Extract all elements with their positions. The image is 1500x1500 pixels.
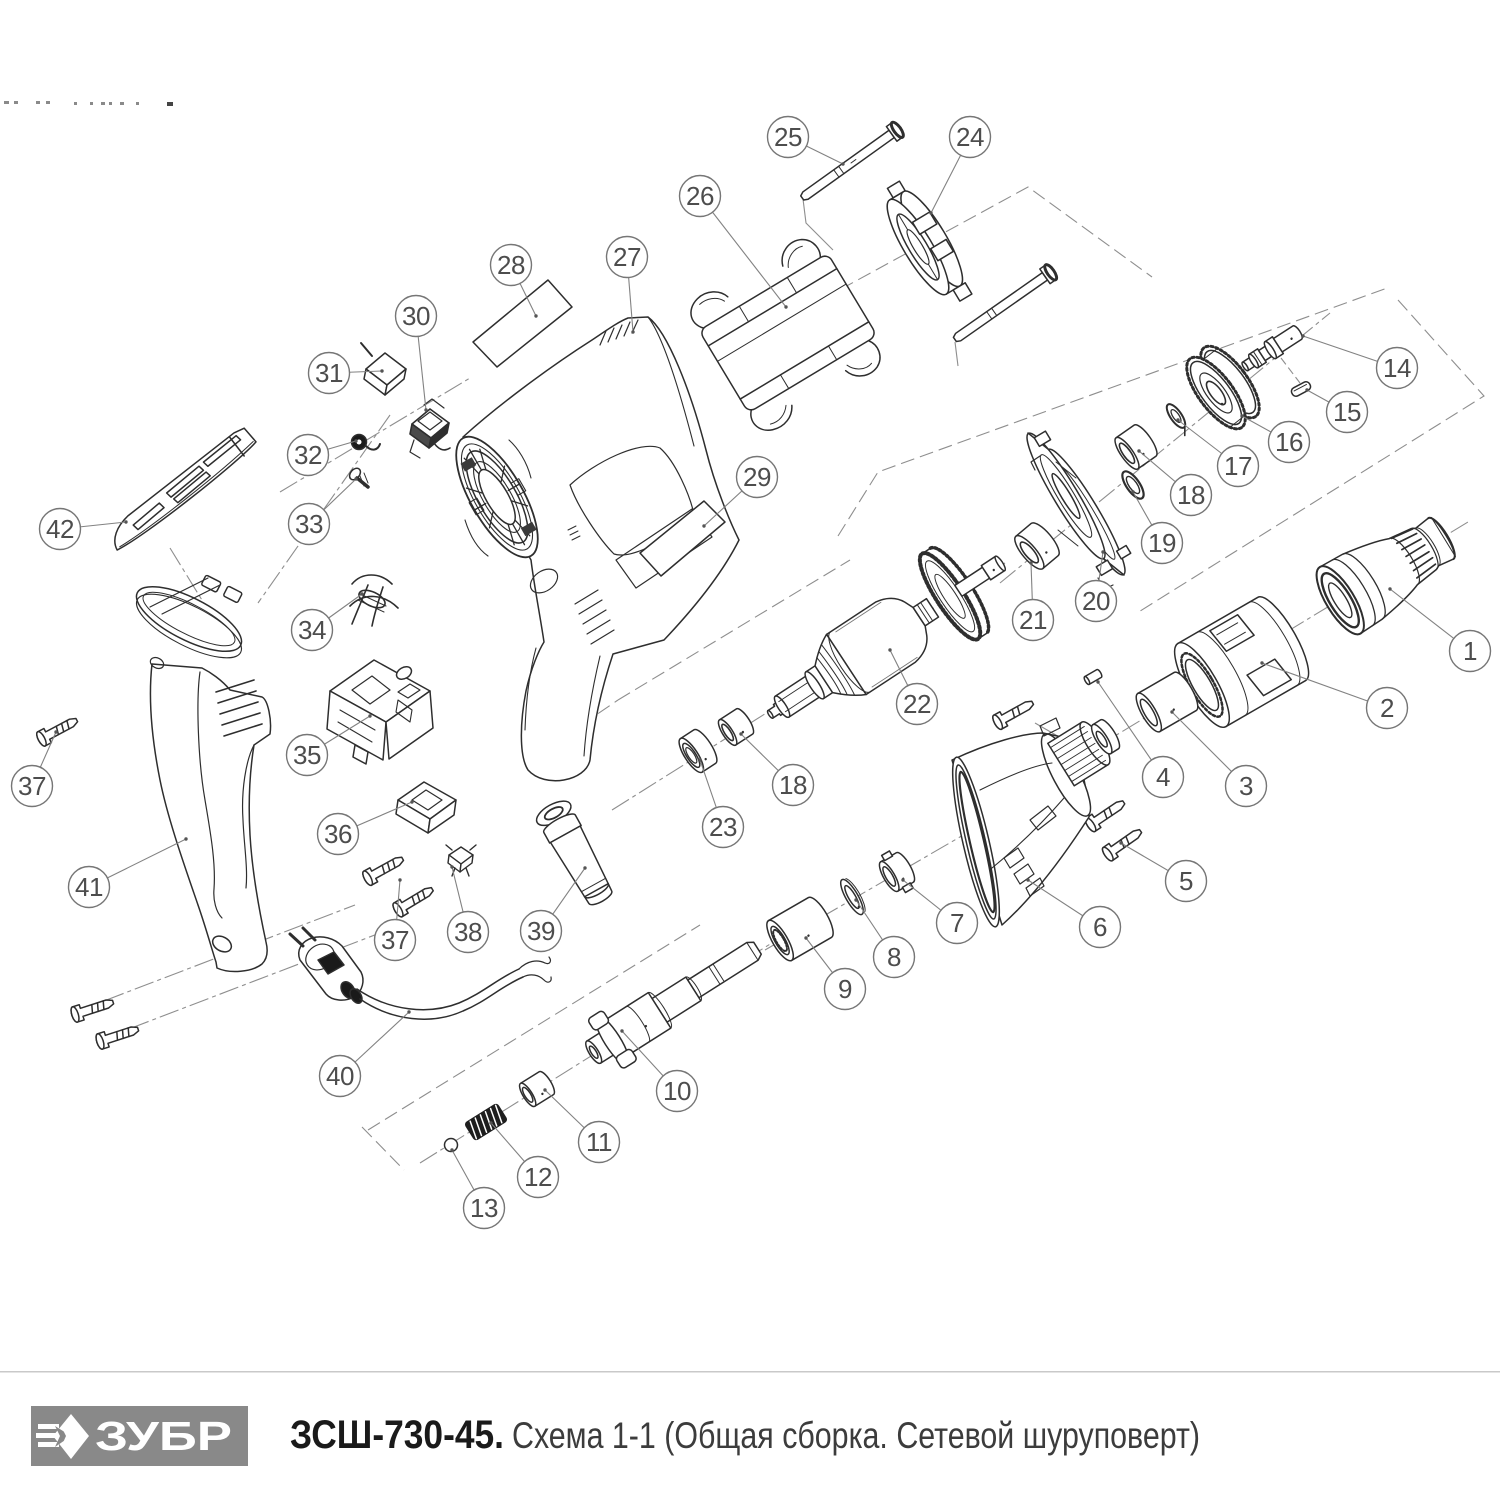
svg-text:ЗУБР: ЗУБР [95, 1413, 232, 1459]
svg-text:40: 40 [326, 1061, 354, 1091]
svg-text:33: 33 [295, 509, 323, 539]
svg-text:29: 29 [743, 462, 771, 492]
svg-text:19: 19 [1148, 528, 1176, 558]
svg-text:15: 15 [1333, 397, 1361, 427]
svg-text:ЗСШ-730-45.: ЗСШ-730-45. [290, 1413, 504, 1457]
svg-text:26: 26 [686, 181, 714, 211]
svg-text:20: 20 [1082, 586, 1110, 616]
svg-text:18: 18 [779, 770, 807, 800]
svg-text:32: 32 [294, 440, 322, 470]
svg-text:37: 37 [381, 925, 409, 955]
svg-text:11: 11 [586, 1127, 612, 1157]
svg-text:37: 37 [18, 771, 46, 801]
svg-text:25: 25 [774, 122, 802, 152]
svg-text:4: 4 [1156, 762, 1170, 792]
svg-text:6: 6 [1093, 912, 1107, 942]
svg-text:31: 31 [315, 358, 343, 388]
svg-text:38: 38 [454, 917, 482, 947]
svg-text:42: 42 [46, 514, 74, 544]
svg-text:8: 8 [887, 942, 901, 972]
svg-text:36: 36 [324, 819, 352, 849]
svg-text:14: 14 [1383, 353, 1411, 383]
svg-text:9: 9 [838, 974, 852, 1004]
svg-text:13: 13 [470, 1193, 498, 1223]
svg-text:5: 5 [1179, 866, 1193, 896]
svg-text:22: 22 [903, 689, 931, 719]
svg-text:34: 34 [298, 615, 326, 645]
svg-text:24: 24 [956, 122, 984, 152]
svg-text:35: 35 [293, 740, 321, 770]
svg-text:10: 10 [663, 1076, 691, 1106]
svg-text:2: 2 [1380, 693, 1394, 723]
svg-text:27: 27 [613, 242, 641, 272]
svg-text:23: 23 [709, 812, 737, 842]
svg-text:3: 3 [1239, 771, 1253, 801]
svg-text:16: 16 [1275, 427, 1303, 457]
svg-text:Схема 1-1 (Общая сборка. Сетев: Схема 1-1 (Общая сборка. Сетевой шурупов… [512, 1415, 1200, 1456]
svg-text:28: 28 [497, 250, 525, 280]
svg-text:21: 21 [1019, 605, 1047, 635]
svg-text:18: 18 [1177, 480, 1205, 510]
svg-text:12: 12 [524, 1162, 552, 1192]
svg-text:1: 1 [1463, 636, 1477, 666]
svg-text:39: 39 [527, 916, 555, 946]
svg-text:41: 41 [75, 872, 103, 902]
svg-text:7: 7 [950, 908, 964, 938]
svg-text:30: 30 [402, 301, 430, 331]
svg-text:17: 17 [1224, 451, 1252, 481]
